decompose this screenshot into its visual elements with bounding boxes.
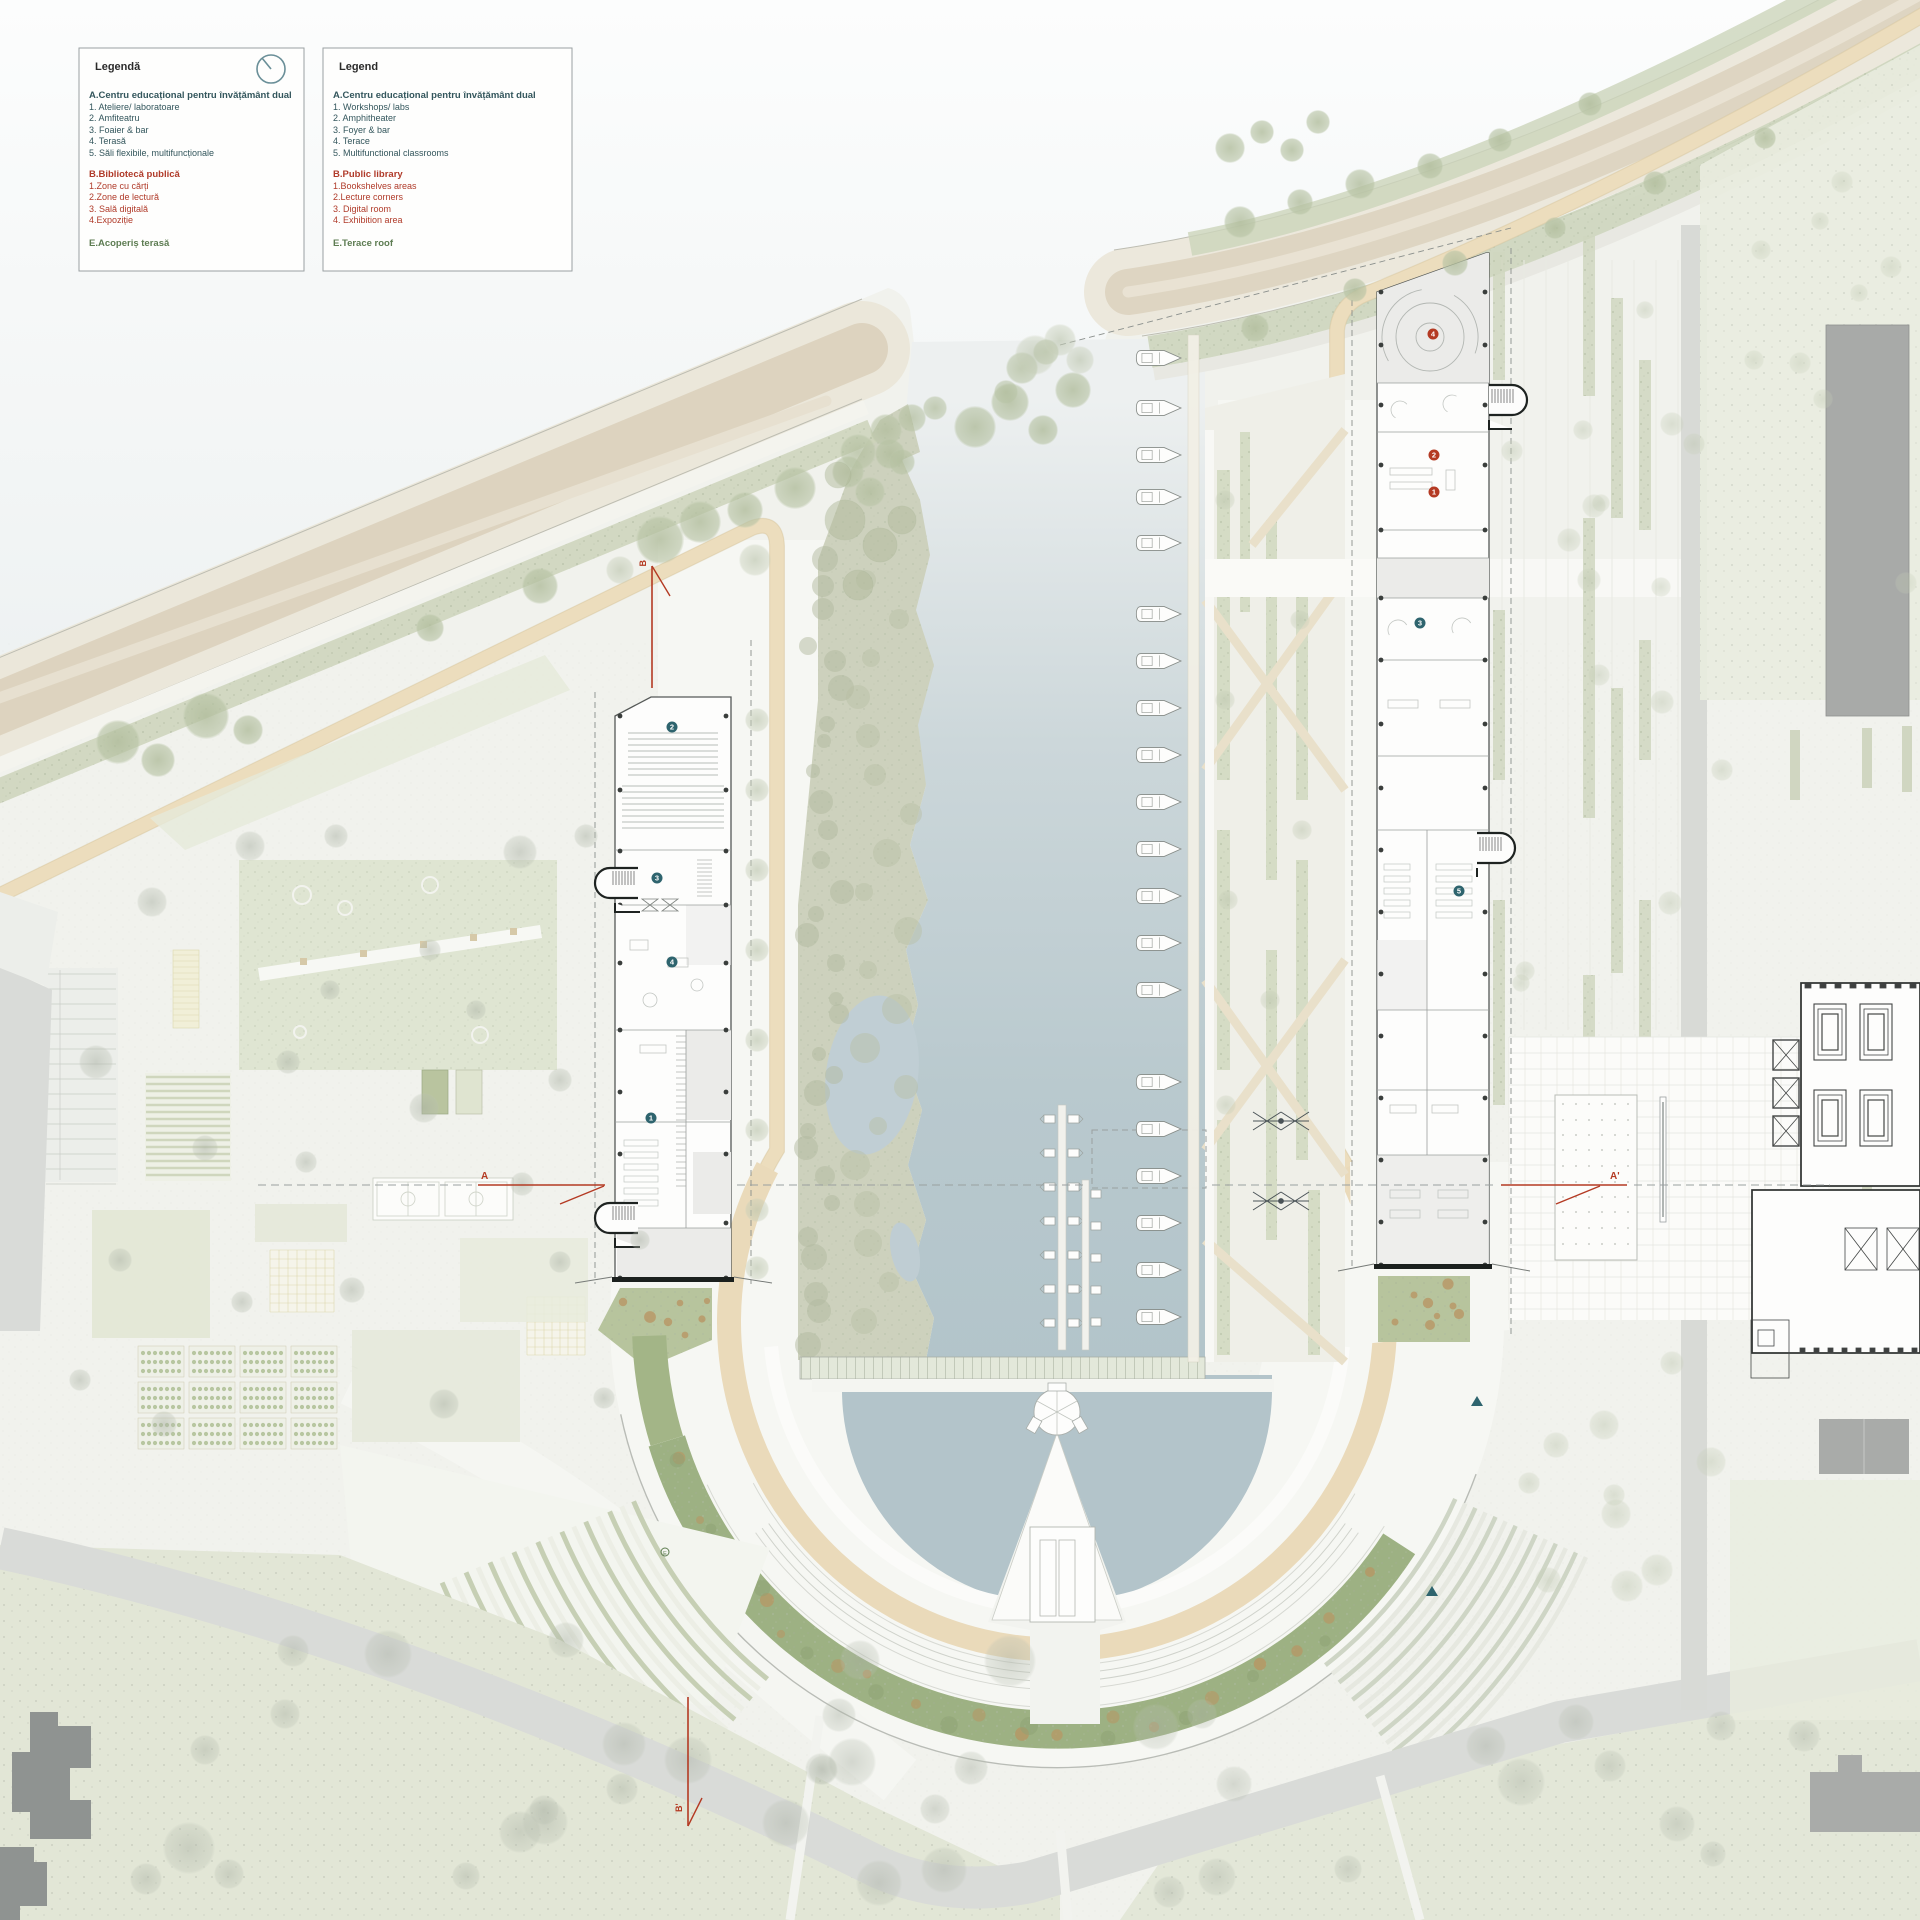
svg-text:3: 3 [1418, 619, 1422, 628]
svg-text:A.Centru educațional pentru în: A.Centru educațional pentru învățământ d… [333, 90, 536, 101]
svg-text:2: 2 [1432, 451, 1436, 460]
svg-text:5. Multifunctional classrooms: 5. Multifunctional classrooms [333, 148, 449, 158]
svg-text:1. Ateliere/ laboratoare: 1. Ateliere/ laboratoare [89, 102, 180, 112]
svg-text:B.Public library: B.Public library [333, 169, 403, 180]
svg-text:1.Bookshelves areas: 1.Bookshelves areas [333, 181, 417, 191]
svg-text:B': B' [674, 1803, 684, 1812]
svg-text:1.Zone cu cărți: 1.Zone cu cărți [89, 181, 149, 191]
svg-text:1: 1 [649, 1114, 653, 1123]
svg-text:Legend: Legend [339, 61, 378, 73]
svg-text:5: 5 [1457, 887, 1461, 896]
svg-text:3: 3 [655, 874, 659, 883]
svg-text:B: B [638, 560, 648, 567]
svg-text:1. Workshops/ labs: 1. Workshops/ labs [333, 102, 410, 112]
svg-text:B.Bibliotecă publică: B.Bibliotecă publică [89, 169, 181, 180]
svg-text:3. Digital room: 3. Digital room [333, 204, 391, 214]
svg-text:A.Centru educațional pentru în: A.Centru educațional pentru învățământ d… [89, 90, 292, 101]
svg-text:4. Exhibition area: 4. Exhibition area [333, 215, 403, 225]
svg-text:A: A [481, 1171, 488, 1182]
svg-text:5. Săli flexibile, multifuncți: 5. Săli flexibile, multifuncționale [89, 148, 214, 158]
svg-text:3. Sală digitală: 3. Sală digitală [89, 204, 148, 214]
svg-text:2.Lecture corners: 2.Lecture corners [333, 192, 404, 202]
svg-text:3. Foaier & bar: 3. Foaier & bar [89, 125, 149, 135]
svg-text:4.Expoziție: 4.Expoziție [89, 215, 133, 225]
svg-text:E: E [663, 1551, 667, 1557]
svg-text:3. Foyer & bar: 3. Foyer & bar [333, 125, 390, 135]
svg-text:2: 2 [670, 723, 674, 732]
svg-text:A': A' [1610, 1171, 1620, 1182]
svg-text:2. Amfiteatru: 2. Amfiteatru [89, 113, 140, 123]
svg-text:4. Terace: 4. Terace [333, 136, 370, 146]
svg-text:E.Acoperiș terasă: E.Acoperiș terasă [89, 238, 170, 249]
svg-text:2. Amphitheater: 2. Amphitheater [333, 113, 396, 123]
svg-text:E.Terace roof: E.Terace roof [333, 238, 394, 249]
svg-text:2.Zone de lectură: 2.Zone de lectură [89, 192, 159, 202]
svg-text:1: 1 [1432, 488, 1436, 497]
svg-text:4. Terasă: 4. Terasă [89, 136, 126, 146]
svg-text:Legendă: Legendă [95, 61, 141, 73]
